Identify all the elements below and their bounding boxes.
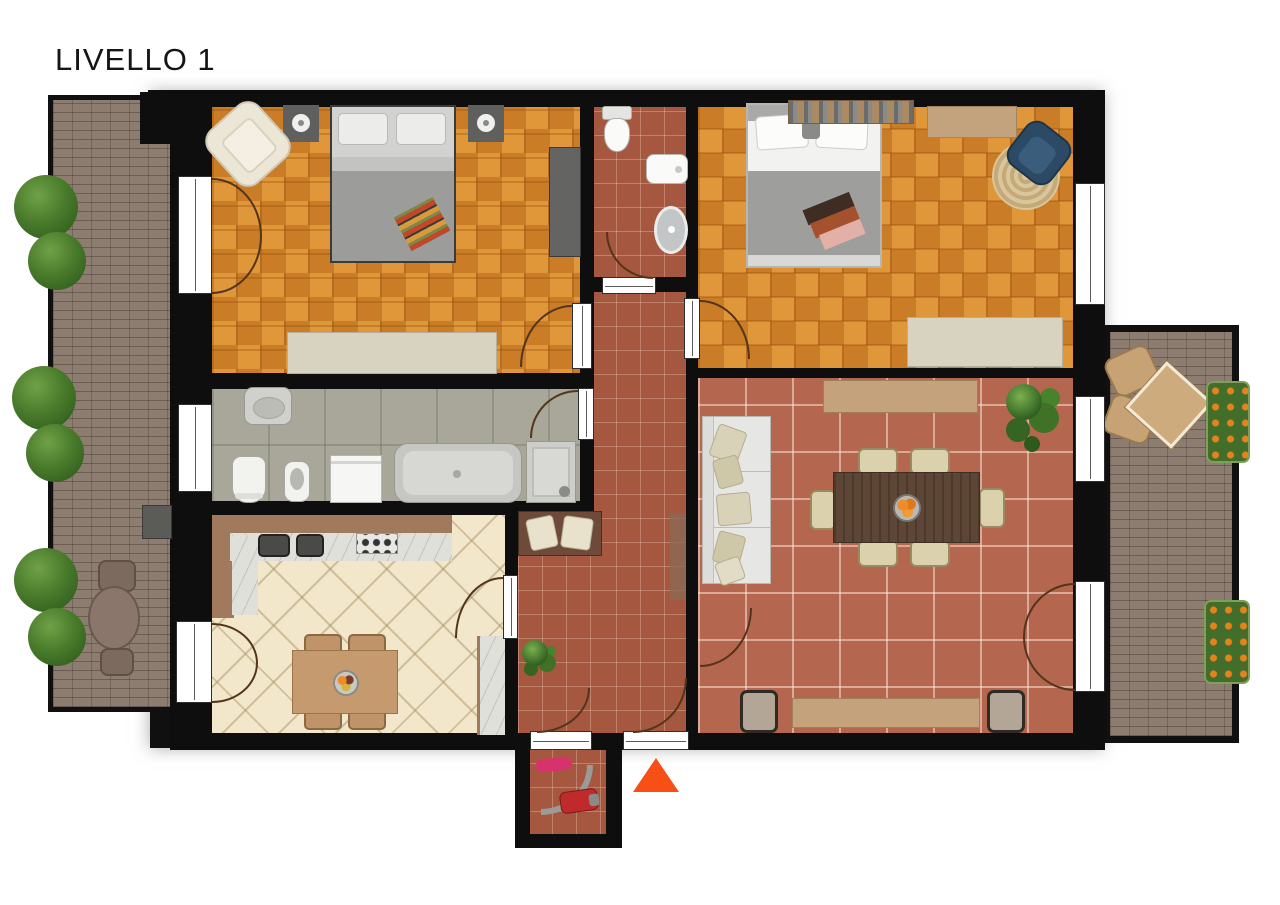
bush [14, 548, 78, 612]
bidet [284, 461, 310, 502]
potted-plant [1006, 384, 1042, 420]
dining-chair [858, 540, 898, 567]
floor-plan: LIVELLO 1 [0, 0, 1280, 905]
flower-planter [1204, 600, 1250, 684]
nightstand [283, 105, 319, 142]
pillow [560, 515, 594, 551]
bed-throw [394, 197, 451, 251]
wall-balcony-notch [140, 92, 174, 144]
dining-chair [979, 488, 1005, 528]
bush [28, 608, 86, 666]
dining-chair [910, 448, 950, 475]
sideboard [792, 698, 980, 728]
bathroom-door-jamb [578, 388, 594, 440]
kitchen-counter-right [477, 636, 505, 735]
double-bed [746, 103, 882, 268]
balcony-table [88, 586, 140, 650]
wall-hall-east [686, 92, 698, 750]
bed-foot [748, 255, 880, 266]
bedroom2-window [1075, 183, 1105, 305]
chair-seat [1015, 134, 1058, 178]
plan-title: LIVELLO 1 [55, 42, 216, 78]
entrance-marker [633, 758, 679, 792]
bush [12, 366, 76, 430]
kitchen-balcony-door-jamb [176, 621, 212, 703]
bathtub [394, 443, 522, 503]
drain-icon [668, 226, 675, 233]
toilet [602, 106, 632, 152]
balcony-chair [100, 648, 134, 676]
drain-icon [453, 470, 461, 478]
potted-plant [522, 640, 548, 666]
fruit-bowl [893, 494, 921, 522]
wall-storage-left [515, 748, 530, 848]
toilet-tank [235, 493, 263, 499]
shower [526, 441, 576, 503]
bedroom1-balcony-door-jamb [178, 176, 212, 294]
pillow [712, 454, 745, 490]
bed-fold [332, 157, 454, 171]
dining-table [833, 472, 980, 543]
vacuum-wheel [588, 793, 600, 806]
mat [927, 106, 1017, 138]
hall-bench [518, 511, 602, 556]
bedroom2-hall-door-jamb [684, 298, 700, 359]
kitchen-sink [296, 534, 324, 557]
bidet [646, 154, 688, 184]
bush [14, 175, 78, 239]
double-bed [330, 105, 456, 263]
wall-storage-right [606, 748, 622, 848]
washer-panel [331, 461, 381, 464]
entrance-door-jamb [623, 731, 689, 750]
sideboard [823, 380, 978, 413]
fruit-bowl [333, 670, 359, 696]
kitchen-cabinet-left [212, 515, 234, 618]
wc-sink [654, 206, 688, 254]
lamp-icon [477, 114, 495, 132]
wall-bedroom2-living [698, 368, 1073, 378]
armchair [740, 690, 778, 733]
pillow [338, 113, 388, 145]
dresser [287, 332, 497, 374]
pillow [396, 113, 446, 145]
sofa [702, 416, 771, 584]
kitchen-cabinet-top [212, 515, 452, 535]
kitchen-hall-door-jamb [503, 575, 518, 639]
hall-runner-rug [670, 514, 686, 600]
flower-planter [1206, 381, 1250, 463]
armchair-seat [220, 116, 279, 175]
bedroom1-hall-door-jamb [572, 303, 592, 369]
bush [28, 232, 86, 290]
wall-storage-bottom [515, 834, 622, 848]
utility-box [142, 505, 172, 539]
washing-machine [330, 455, 382, 503]
storage-door-jamb [530, 731, 592, 750]
bathroom-sink [244, 387, 292, 425]
bidet-basin [290, 468, 304, 490]
wc-door-jamb [602, 277, 656, 294]
stove [356, 533, 398, 554]
living-balcony-door-jamb [1075, 581, 1105, 692]
dresser [907, 317, 1063, 367]
kitchen-sink [258, 534, 290, 557]
kitchen-countertop [232, 535, 258, 615]
dining-chair [910, 540, 950, 567]
bathroom-window [178, 404, 212, 492]
shower-head-icon [559, 486, 570, 497]
wardrobe [549, 147, 581, 257]
drain-icon [675, 166, 682, 173]
nightstand [468, 105, 504, 142]
dining-chair [858, 448, 898, 475]
bush [26, 424, 84, 482]
sink-basin [253, 397, 285, 419]
living-window [1075, 396, 1105, 482]
kitchen-table [292, 650, 398, 714]
shelf-with-books [788, 100, 914, 124]
armchair [987, 690, 1025, 733]
sofa-seam [714, 527, 770, 528]
pillow [716, 492, 753, 527]
toilet-bowl [604, 118, 630, 152]
hallway-corridor-floor [592, 280, 688, 735]
pillow [525, 514, 559, 551]
toilet [232, 456, 266, 503]
lamp-icon [292, 114, 310, 132]
